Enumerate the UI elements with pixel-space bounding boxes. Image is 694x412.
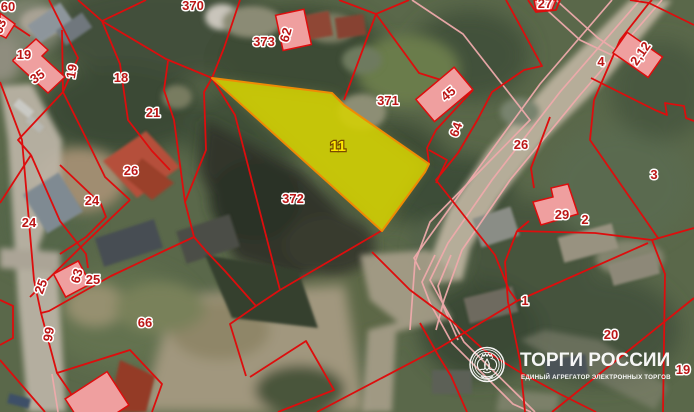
svg-text:19: 19 (17, 47, 31, 62)
svg-text:11: 11 (330, 138, 346, 155)
svg-text:26: 26 (514, 137, 528, 152)
svg-text:60: 60 (1, 0, 15, 14)
svg-text:2: 2 (581, 212, 588, 227)
svg-text:25: 25 (86, 272, 100, 287)
svg-text:99: 99 (40, 326, 57, 343)
svg-text:3: 3 (650, 167, 657, 182)
svg-text:19: 19 (676, 362, 690, 377)
svg-text:18: 18 (114, 70, 128, 85)
svg-text:1: 1 (521, 293, 528, 308)
svg-text:373: 373 (253, 34, 275, 49)
svg-text:21: 21 (146, 105, 160, 120)
svg-text:29: 29 (555, 207, 569, 222)
svg-text:ТОРГИ РОССИИ: ТОРГИ РОССИИ (520, 350, 670, 371)
svg-text:370: 370 (182, 0, 204, 13)
svg-text:371: 371 (377, 93, 399, 108)
svg-text:24: 24 (22, 215, 37, 230)
svg-text:26: 26 (124, 163, 138, 178)
svg-text:19: 19 (63, 63, 80, 80)
svg-text:66: 66 (138, 315, 152, 330)
svg-text:20: 20 (604, 327, 618, 342)
svg-text:ЕДИНЫЙ АГРЕГАТОР ЭЛЕКТРОННЫХ Т: ЕДИНЫЙ АГРЕГАТОР ЭЛЕКТРОННЫХ ТОРГОВ (521, 373, 671, 381)
svg-text:4: 4 (597, 54, 605, 69)
svg-text:27: 27 (538, 0, 552, 11)
svg-text:24: 24 (85, 193, 100, 208)
svg-text:372: 372 (282, 191, 304, 206)
